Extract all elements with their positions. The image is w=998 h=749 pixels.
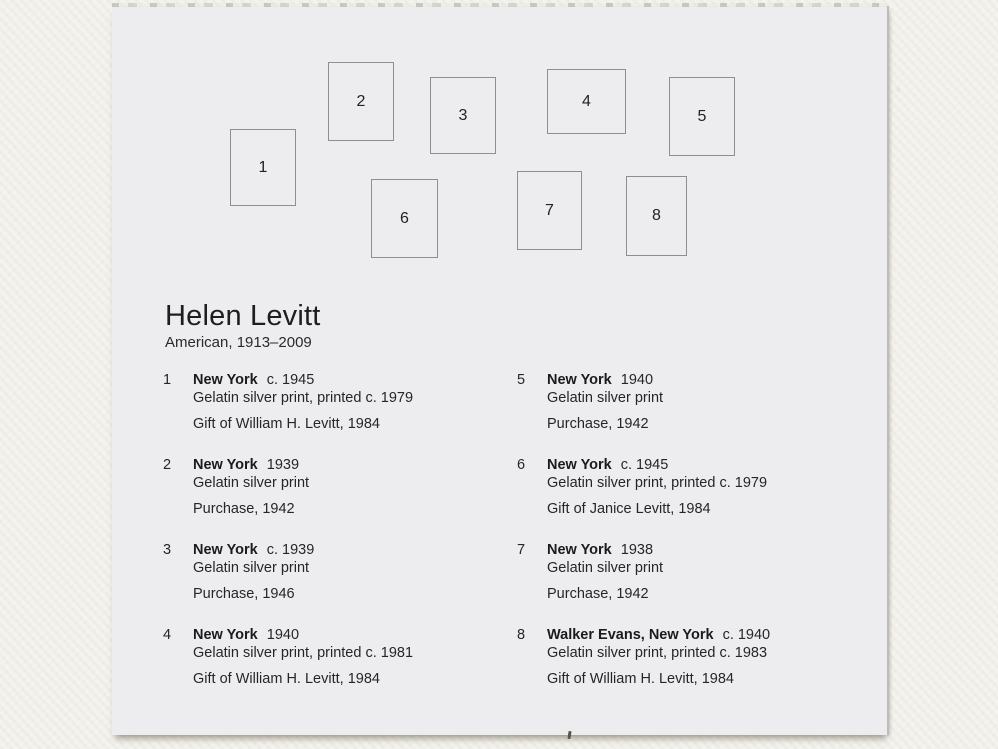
entry-credit: Gift of William H. Levitt, 1984 [193, 671, 517, 689]
artwork-frame-box: 3 [430, 77, 496, 154]
artist-dates: American, 1913–2009 [165, 334, 321, 352]
entries-column-right: 5 New York1940 Gelatin silver print Purc… [517, 372, 863, 712]
entry-medium: Gelatin silver print [193, 475, 517, 493]
entry-credit: Purchase, 1946 [193, 586, 517, 604]
entry-medium: Gelatin silver print, printed c. 1981 [193, 645, 517, 663]
artwork-frame-number: 4 [582, 93, 591, 111]
entry-title: New York [547, 542, 612, 558]
artwork-frame-number: 5 [698, 108, 707, 126]
entry-credit: Gift of Janice Levitt, 1984 [547, 501, 863, 519]
artwork-frame-number: 8 [652, 207, 661, 225]
artist-name: Helen Levitt [165, 300, 321, 333]
entry-title-line: New York1940 [193, 627, 517, 645]
artwork-frame-box: 5 [669, 77, 735, 156]
artwork-frame-number: 2 [357, 93, 366, 111]
entry-date: c. 1939 [267, 542, 315, 558]
entry-date: 1940 [267, 627, 299, 643]
entry-text: New York1940 Gelatin silver print Purcha… [547, 372, 863, 457]
entry-medium: Gelatin silver print [547, 560, 863, 578]
entry-number: 8 [517, 627, 547, 712]
entry-title-line: New Yorkc. 1945 [547, 457, 863, 475]
entry-date: 1940 [621, 372, 653, 388]
artwork-entry: 4 New York1940 Gelatin silver print, pri… [163, 627, 517, 712]
entry-date: 1938 [621, 542, 653, 558]
entry-title-line: New York1940 [547, 372, 863, 390]
entry-text: New York1938 Gelatin silver print Purcha… [547, 542, 863, 627]
entry-number: 1 [163, 372, 193, 457]
entry-text: New Yorkc. 1945 Gelatin silver print, pr… [193, 372, 517, 457]
entry-text: New Yorkc. 1939 Gelatin silver print Pur… [193, 542, 517, 627]
entry-title: New York [193, 372, 258, 388]
artwork-frame-box: 2 [328, 62, 394, 141]
entry-medium: Gelatin silver print, printed c. 1979 [547, 475, 863, 493]
entry-title: New York [547, 457, 612, 473]
artwork-entry: 6 New Yorkc. 1945 Gelatin silver print, … [517, 457, 863, 542]
entry-credit: Purchase, 1942 [547, 416, 863, 434]
entry-date: 1939 [267, 457, 299, 473]
entry-text: New Yorkc. 1945 Gelatin silver print, pr… [547, 457, 863, 542]
artwork-entry: 8 Walker Evans, New Yorkc. 1940 Gelatin … [517, 627, 863, 712]
entry-title: Walker Evans, New York [547, 627, 714, 643]
artwork-entry: 3 New Yorkc. 1939 Gelatin silver print P… [163, 542, 517, 627]
entry-number: 4 [163, 627, 193, 712]
entry-title: New York [193, 627, 258, 643]
entry-title: New York [547, 372, 612, 388]
entry-credit: Gift of William H. Levitt, 1984 [193, 416, 517, 434]
entry-date: c. 1945 [621, 457, 669, 473]
entry-medium: Gelatin silver print [193, 560, 517, 578]
artwork-frame-box: 4 [547, 69, 626, 134]
entries-columns: 1 New Yorkc. 1945 Gelatin silver print, … [163, 372, 863, 712]
artwork-frame-number: 1 [259, 159, 268, 177]
entry-title: New York [193, 542, 258, 558]
artwork-entry: 5 New York1940 Gelatin silver print Purc… [517, 372, 863, 457]
artwork-frame-box: 6 [371, 179, 438, 258]
entries-column-left: 1 New Yorkc. 1945 Gelatin silver print, … [163, 372, 517, 712]
entry-title-line: New Yorkc. 1945 [193, 372, 517, 390]
artwork-frame-box: 8 [626, 176, 687, 256]
artwork-frame-number: 3 [459, 107, 468, 125]
entry-title-line: New York1938 [547, 542, 863, 560]
entry-medium: Gelatin silver print, printed c. 1979 [193, 390, 517, 408]
artwork-frame-box: 1 [230, 129, 296, 206]
entry-text: New York1939 Gelatin silver print Purcha… [193, 457, 517, 542]
entry-credit: Gift of William H. Levitt, 1984 [547, 671, 863, 689]
artwork-entry: 1 New Yorkc. 1945 Gelatin silver print, … [163, 372, 517, 457]
artwork-entry: 2 New York1939 Gelatin silver print Purc… [163, 457, 517, 542]
entry-title-line: Walker Evans, New Yorkc. 1940 [547, 627, 863, 645]
entry-number: 2 [163, 457, 193, 542]
entry-credit: Purchase, 1942 [547, 586, 863, 604]
artwork-frame-number: 7 [545, 202, 554, 220]
entry-title-line: New Yorkc. 1939 [193, 542, 517, 560]
entry-date: c. 1945 [267, 372, 315, 388]
entry-medium: Gelatin silver print [547, 390, 863, 408]
entry-number: 6 [517, 457, 547, 542]
card-top-edge [112, 3, 887, 7]
wall-label-card: 1 2 3 4 5 6 7 8 Helen Levitt American, 1… [112, 6, 889, 735]
entry-date: c. 1940 [723, 627, 771, 643]
artwork-frame-box: 7 [517, 171, 582, 250]
entry-number: 3 [163, 542, 193, 627]
entry-medium: Gelatin silver print, printed c. 1983 [547, 645, 863, 663]
pin-mark [567, 731, 571, 739]
entry-title: New York [193, 457, 258, 473]
entry-title-line: New York1939 [193, 457, 517, 475]
entry-number: 5 [517, 372, 547, 457]
entry-credit: Purchase, 1942 [193, 501, 517, 519]
entry-number: 7 [517, 542, 547, 627]
gallery-wall: 1 2 3 4 5 6 7 8 Helen Levitt American, 1… [0, 0, 998, 749]
artwork-entry: 7 New York1938 Gelatin silver print Purc… [517, 542, 863, 627]
artwork-frame-number: 6 [400, 210, 409, 228]
label-heading: Helen Levitt American, 1913–2009 [165, 300, 321, 352]
entry-text: Walker Evans, New Yorkc. 1940 Gelatin si… [547, 627, 863, 712]
entry-text: New York1940 Gelatin silver print, print… [193, 627, 517, 712]
